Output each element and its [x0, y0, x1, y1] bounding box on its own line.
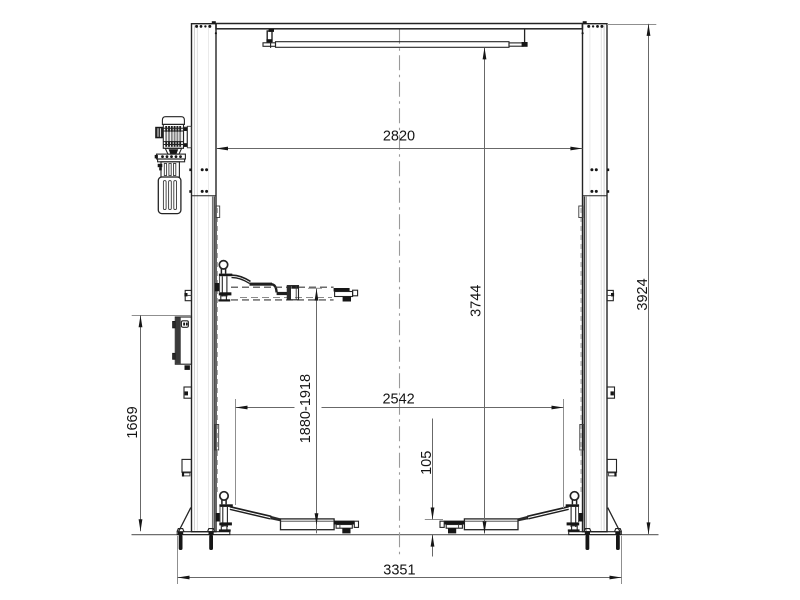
- svg-text:1880-1918: 1880-1918: [298, 374, 314, 443]
- svg-text:3351: 3351: [383, 563, 415, 579]
- svg-text:3744: 3744: [468, 285, 484, 317]
- svg-text:2542: 2542: [382, 392, 414, 408]
- svg-text:2820: 2820: [383, 128, 415, 144]
- svg-text:1669: 1669: [125, 406, 141, 438]
- svg-text:105: 105: [419, 451, 435, 475]
- svg-text:3924: 3924: [635, 278, 651, 310]
